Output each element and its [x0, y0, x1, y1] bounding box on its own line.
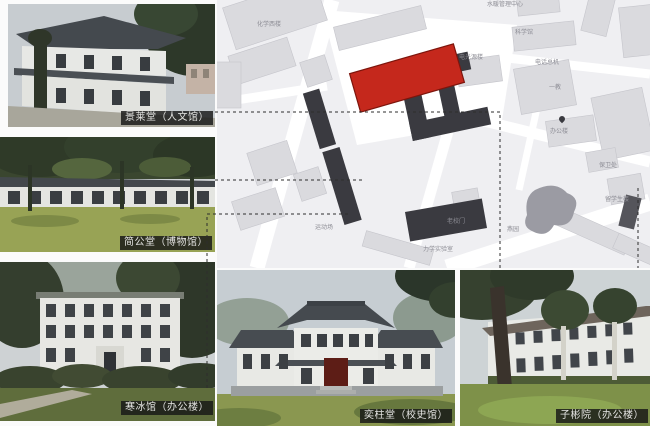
- campus-map: 化学西楼 水暖管理中心 科学馆 电光源楼 电话总机 一教 办公楼 保卫处 留学生…: [217, 0, 650, 268]
- map-label-light-source-lab: 电光源楼: [459, 54, 483, 61]
- photo-2-image: [0, 137, 215, 252]
- map-label-mechanics-lab: 力学实验室: [423, 246, 453, 253]
- photo-1-caption: 景莱堂（人文馆）: [121, 111, 213, 125]
- photo-3-image: [0, 262, 215, 421]
- photo-yizhu-hall: 奕柱堂（校史馆）: [217, 270, 455, 426]
- photo-5-caption: 子彬院（办公楼）: [556, 409, 648, 423]
- map-label-teaching-bldg-1: 一教: [549, 84, 561, 91]
- photo-4-caption: 奕柱堂（校史馆）: [360, 409, 452, 423]
- photo-jiangong-hall: 简公堂（博物馆）: [0, 137, 215, 252]
- map-label-telephone-exchange: 电话总机: [535, 59, 559, 66]
- map-label-science-hall: 科学馆: [515, 29, 533, 36]
- photo-hanbing-hall: 寒冰馆（办公楼）: [0, 262, 215, 421]
- map-label-old-school-gate: 老校门: [447, 218, 465, 225]
- photo-5-image: [460, 270, 650, 426]
- map-label-office-bldg: 办公楼: [550, 128, 568, 135]
- map-label-yan-garden: 燕园: [507, 226, 519, 233]
- campus-map-drawing: [217, 0, 650, 268]
- photo-zibin-hall: 子彬院（办公楼）: [460, 270, 650, 426]
- photo-2-caption: 简公堂（博物馆）: [120, 236, 212, 250]
- map-label-sports-field: 运动场: [315, 224, 333, 231]
- photo-jinglai-hall: 景莱堂（人文馆）: [8, 4, 215, 127]
- photo-3-caption: 寒冰馆（办公楼）: [121, 401, 213, 415]
- map-label-intl-student-bldg: 留学生楼: [605, 196, 629, 203]
- photo-4-image: [217, 270, 455, 426]
- map-label-utility-center: 水暖管理中心: [487, 1, 523, 8]
- map-label-security-office: 保卫处: [599, 162, 617, 169]
- campus-heritage-collage: 化学西楼 水暖管理中心 科学馆 电光源楼 电话总机 一教 办公楼 保卫处 留学生…: [0, 0, 650, 426]
- map-label-chemistry-west: 化学西楼: [257, 21, 281, 28]
- photo-1-image: [8, 4, 215, 127]
